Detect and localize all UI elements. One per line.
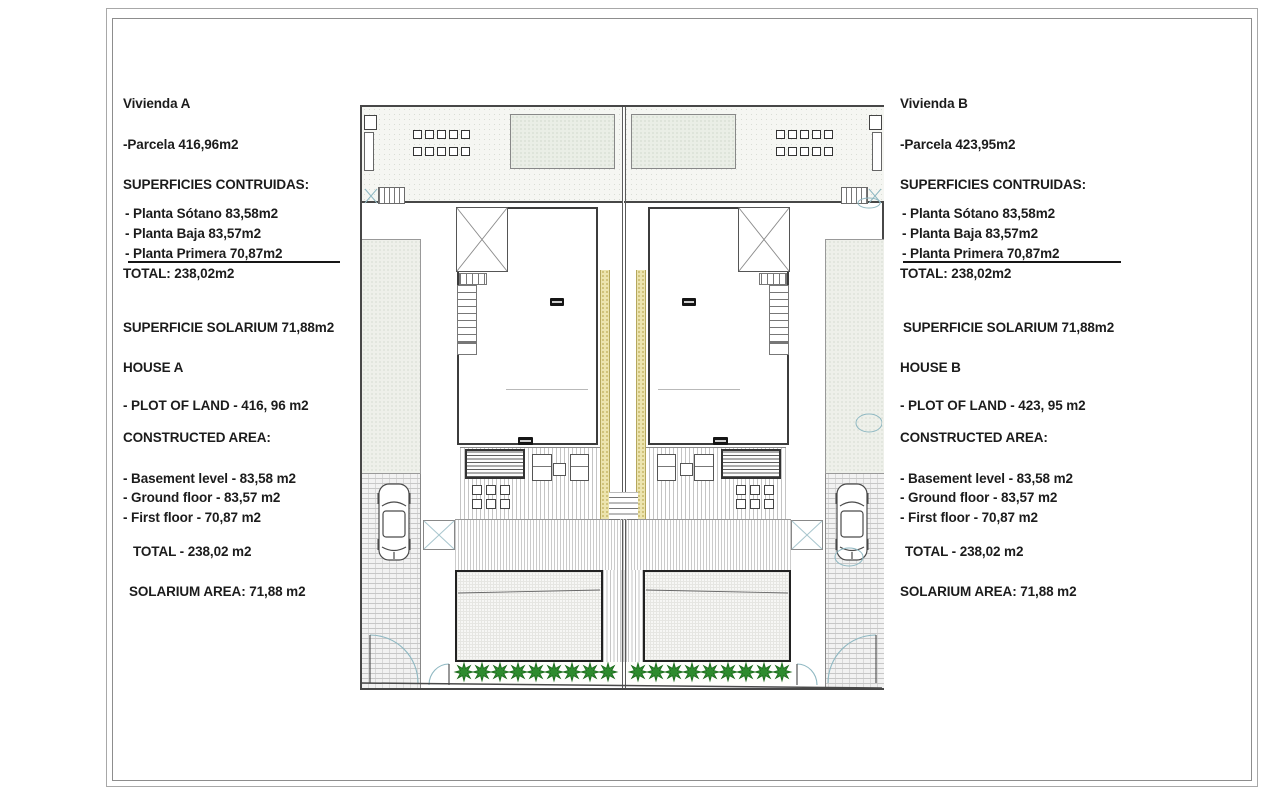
pergola-hatch — [721, 449, 781, 479]
sofa — [694, 454, 714, 481]
house-a-planta-sotano: - Planta Sótano 83,58m2 — [125, 206, 278, 221]
skylight-void — [738, 207, 790, 272]
hedge-bed — [455, 662, 622, 685]
house-a-plot — [362, 107, 622, 688]
entrance-porch — [791, 520, 823, 550]
lower-terrace-decking — [624, 519, 791, 570]
house-b-total-en: TOTAL - 238,02 m2 — [905, 544, 1023, 559]
door-label-chip — [713, 437, 728, 445]
roof-table-and-chairs — [413, 130, 470, 156]
sofa — [532, 454, 552, 481]
house-a-planta-baja: - Planta Baja 83,57m2 — [125, 226, 261, 241]
house-b-parcela: -Parcela 423,95m2 — [900, 137, 1015, 152]
utility-box — [869, 115, 882, 130]
floor-edge-line — [506, 389, 588, 390]
coffee-table — [553, 463, 566, 476]
house-b-solarium-en: SOLARIUM AREA: 71,88 m2 — [900, 584, 1077, 599]
roof-table-and-chairs — [776, 130, 833, 156]
house-a-parcela: -Parcela 416,96m2 — [123, 137, 238, 152]
pergola-hatch — [465, 449, 525, 479]
house-b-title: Vivienda B — [900, 96, 968, 111]
site-plan-sheet: Vivienda A -Parcela 416,96m2 SUPERFICIES… — [0, 0, 1280, 800]
house-a-house-heading: HOUSE A — [123, 360, 183, 375]
interior-stair-landing — [457, 343, 477, 355]
swimming-pool — [455, 570, 603, 662]
entrance-porch — [423, 520, 455, 550]
room-label-chip — [550, 298, 564, 306]
swimming-pool — [643, 570, 791, 662]
house-b-ground-floor: - Ground floor - 83,57 m2 — [900, 490, 1057, 505]
side-garden — [362, 239, 421, 474]
house-a-solarium-en: SOLARIUM AREA: 71,88 m2 — [129, 584, 306, 599]
coffee-table — [680, 463, 693, 476]
armchair — [657, 454, 676, 481]
pedestrian-gate — [429, 664, 449, 685]
roof-hatch-area — [631, 114, 736, 169]
house-b-house-heading: HOUSE B — [900, 360, 961, 375]
armchair — [570, 454, 589, 481]
utility-box — [364, 115, 377, 130]
house-a-plot-of-land: - PLOT OF LAND - 416, 96 m2 — [123, 398, 309, 413]
room-label-chip — [682, 298, 696, 306]
driveway-paving — [362, 474, 421, 688]
party-wall-hatch — [600, 270, 610, 519]
outdoor-dining-set — [736, 485, 774, 509]
side-planter — [364, 132, 374, 171]
house-a-total-es: TOTAL: 238,02m2 — [123, 266, 234, 281]
interior-stair-upper-run — [459, 273, 487, 285]
skylight-void — [456, 207, 508, 272]
driveway-paving — [825, 474, 884, 688]
door-label-chip — [518, 437, 533, 445]
side-entry-stairs — [378, 187, 405, 204]
house-b-planta-sotano: - Planta Sótano 83,58m2 — [902, 206, 1055, 221]
house-b-solarium-es: SUPERFICIE SOLARIUM 71,88m2 — [903, 320, 1114, 335]
party-wall-hatch — [636, 270, 646, 519]
shared-exterior-stairs — [609, 492, 638, 520]
house-a-total-rule — [128, 261, 340, 263]
house-a-ground-floor: - Ground floor - 83,57 m2 — [123, 490, 280, 505]
interior-stair-lower-run — [769, 285, 789, 343]
house-b-total-es: TOTAL: 238,02m2 — [900, 266, 1011, 281]
house-a-first-floor: - First floor - 70,87 m2 — [123, 510, 261, 525]
house-b-plot — [624, 107, 884, 688]
house-a-total-en: TOTAL - 238,02 m2 — [133, 544, 251, 559]
interior-stair-landing — [769, 343, 789, 355]
house-a-constructed-heading: CONSTRUCTED AREA: — [123, 430, 271, 445]
side-planter — [872, 132, 882, 171]
house-b-superficies-heading: SUPERFICIES CONTRUIDAS: — [900, 177, 1086, 192]
site-plan-drawing — [360, 105, 884, 690]
house-b-first-floor: - First floor - 70,87 m2 — [900, 510, 1038, 525]
outdoor-dining-set — [472, 485, 510, 509]
house-b-planta-primera: - Planta Primera 70,87m2 — [902, 246, 1059, 261]
house-b-total-rule — [903, 261, 1121, 263]
house-a-superficies-heading: SUPERFICIES CONTRUIDAS: — [123, 177, 309, 192]
house-a-solarium-es: SUPERFICIE SOLARIUM 71,88m2 — [123, 320, 334, 335]
pedestrian-gate — [797, 664, 817, 685]
interior-stair-lower-run — [457, 285, 477, 343]
side-entry-stairs — [841, 187, 868, 204]
house-b-basement: - Basement level - 83,58 m2 — [900, 471, 1073, 486]
house-a-title: Vivienda A — [123, 96, 190, 111]
house-a-planta-primera: - Planta Primera 70,87m2 — [125, 246, 282, 261]
roof-hatch-area — [510, 114, 615, 169]
central-path — [620, 519, 627, 662]
hedge-bed — [624, 662, 791, 685]
house-b-planta-baja: - Planta Baja 83,57m2 — [902, 226, 1038, 241]
house-b-constructed-heading: CONSTRUCTED AREA: — [900, 430, 1048, 445]
lower-terrace-decking — [455, 519, 622, 570]
interior-stair-upper-run — [759, 273, 787, 285]
side-garden — [825, 239, 884, 474]
floor-edge-line — [658, 389, 740, 390]
house-b-plot-of-land: - PLOT OF LAND - 423, 95 m2 — [900, 398, 1086, 413]
house-a-basement: - Basement level - 83,58 m2 — [123, 471, 296, 486]
